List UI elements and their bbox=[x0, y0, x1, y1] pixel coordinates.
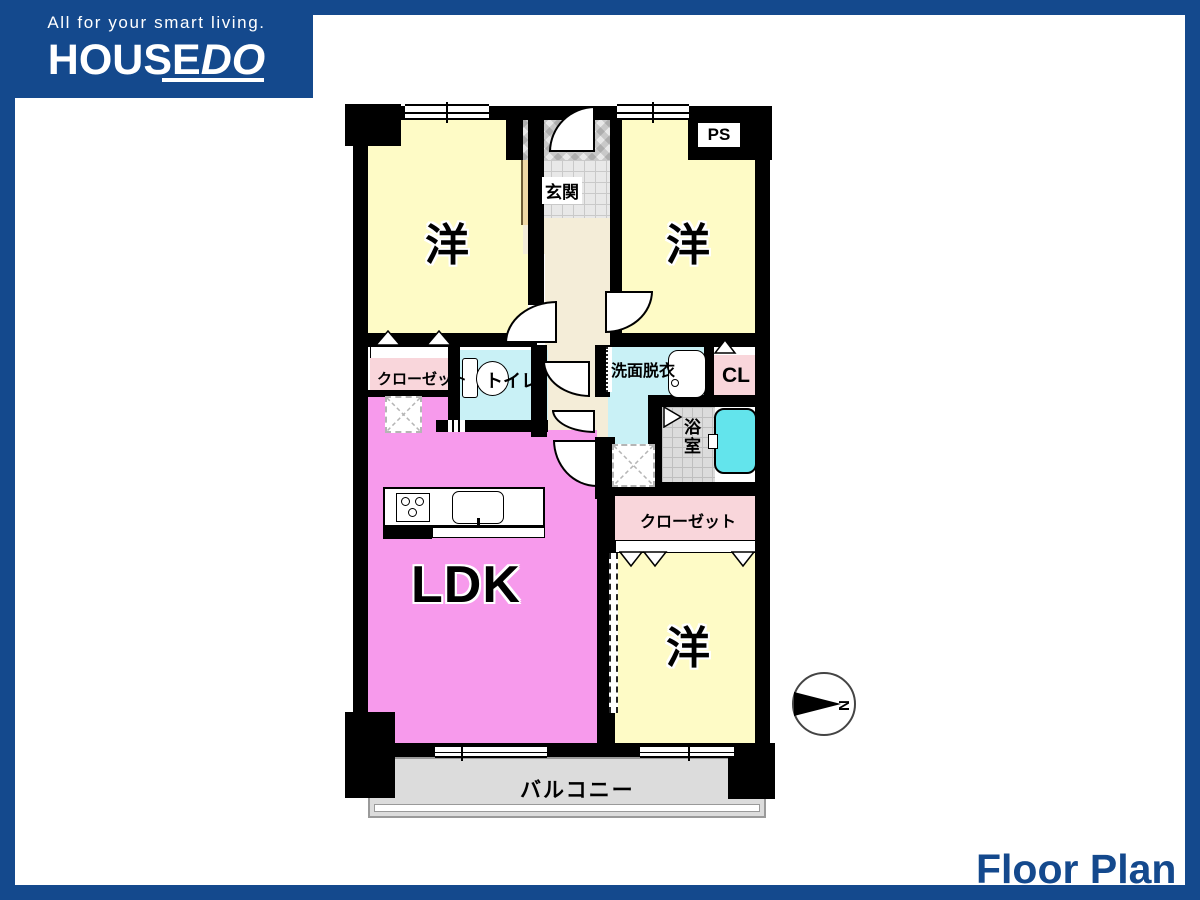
closet-left-triangle-1 bbox=[375, 330, 402, 347]
label-toilet: トイレ bbox=[485, 367, 539, 393]
brand-logo: All for your smart living. HOUSEDO bbox=[0, 0, 313, 98]
compass-north-label: N bbox=[835, 700, 852, 711]
label-bathroom: 浴室 bbox=[678, 418, 703, 456]
label-washroom: 洗面脱衣 bbox=[611, 357, 675, 381]
brand-name-main: HOUSE bbox=[48, 36, 201, 84]
closet-right-triangle-1 bbox=[619, 551, 644, 568]
door-jamb-toilet bbox=[448, 420, 465, 432]
wall-block-bottom-left bbox=[345, 712, 395, 798]
wall-bedroom1-right bbox=[528, 118, 544, 305]
wall-right bbox=[755, 146, 770, 757]
refrigerator-space-box bbox=[385, 396, 422, 433]
frame-left bbox=[0, 0, 15, 900]
label-closet-cl: CL bbox=[722, 364, 750, 388]
bathtub-faucet bbox=[708, 434, 718, 449]
bathtub-icon bbox=[714, 408, 757, 474]
pipe-space-label: PS bbox=[708, 125, 731, 144]
stove-icon bbox=[396, 493, 430, 522]
wall-kitchen-stub bbox=[383, 527, 432, 539]
label-balcony: バルコニー bbox=[520, 774, 635, 804]
label-entrance: 玄関 bbox=[542, 177, 582, 204]
closet-cl-triangle bbox=[714, 339, 738, 355]
kitchen-counter-lip bbox=[432, 527, 545, 538]
closet-right-triangle-3 bbox=[731, 551, 756, 568]
wall-left bbox=[353, 106, 368, 757]
closet-right-triangle-2 bbox=[643, 551, 668, 568]
compass: N bbox=[792, 672, 856, 736]
brand-name-accent: DO bbox=[201, 36, 266, 84]
label-closet-right: クローゼット bbox=[640, 508, 736, 532]
label-bedroom-bottom-right: 洋 bbox=[666, 612, 710, 676]
footer-title: Floor Plan bbox=[976, 846, 1176, 893]
accordion-door-bedroom3 bbox=[609, 553, 618, 713]
label-bedroom-top-right: 洋 bbox=[666, 209, 710, 273]
closet-left-triangle-2 bbox=[426, 330, 453, 347]
pipe-space-box: PS bbox=[696, 121, 742, 149]
window-top-right bbox=[617, 104, 689, 120]
window-bottom-right bbox=[640, 745, 734, 758]
balcony-inner-line bbox=[374, 804, 760, 812]
brand-tagline: All for your smart living. bbox=[0, 13, 313, 33]
frame-right bbox=[1185, 0, 1200, 900]
label-ldk: LDK bbox=[411, 555, 521, 615]
wall-porch-left bbox=[506, 106, 523, 160]
floor-plan-page: All for your smart living. HOUSEDO bbox=[0, 0, 1200, 900]
label-bedroom-top-left: 洋 bbox=[425, 209, 469, 273]
window-top-left bbox=[405, 104, 489, 120]
window-bottom-left bbox=[435, 745, 547, 758]
brand-wordmark: HOUSEDO bbox=[0, 36, 313, 85]
brand-underline bbox=[162, 78, 264, 82]
wall-block-bottom-right bbox=[728, 743, 775, 799]
washer-space-box bbox=[612, 444, 655, 487]
label-closet-left: クローゼット bbox=[377, 368, 467, 389]
